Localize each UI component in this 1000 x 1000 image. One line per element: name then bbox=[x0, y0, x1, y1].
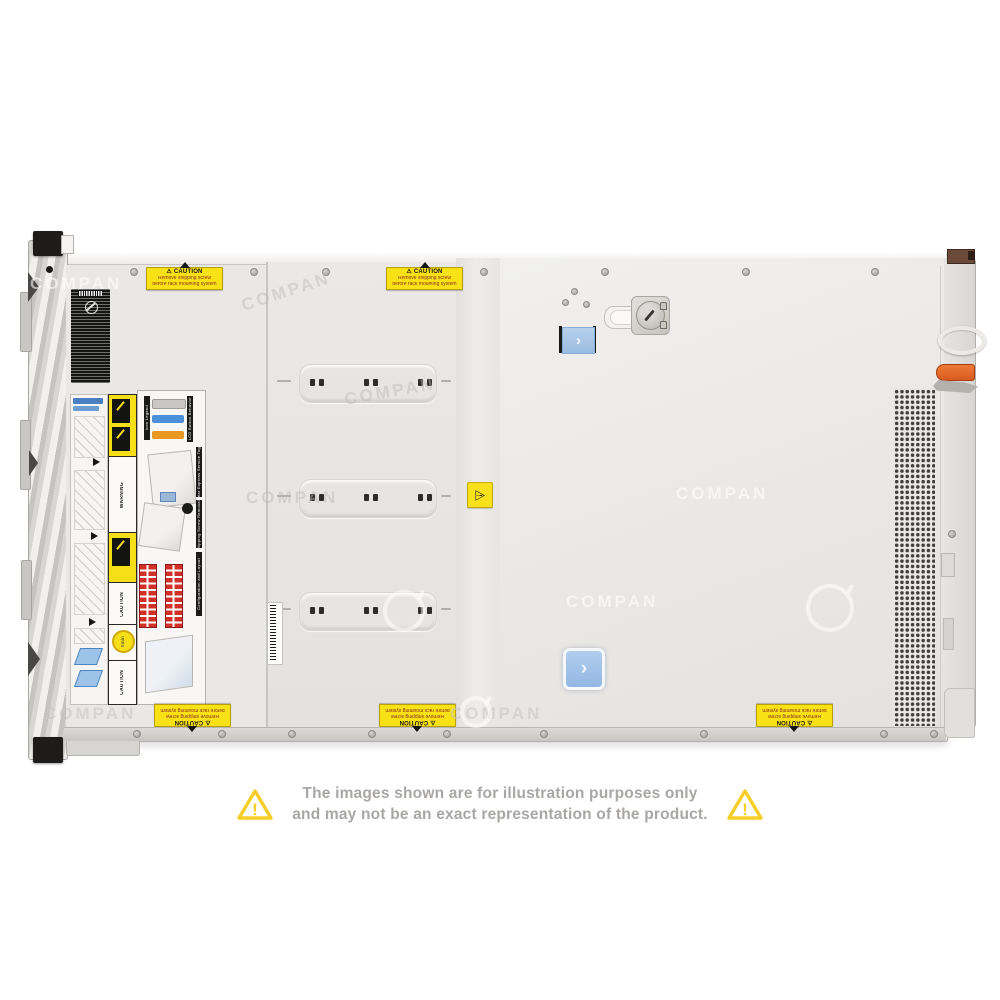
unlock-icon bbox=[660, 321, 667, 329]
psu-vent-grid bbox=[893, 388, 935, 726]
screw bbox=[930, 730, 938, 738]
hazard-triangle-icon: ⚠ bbox=[474, 489, 487, 501]
screw bbox=[948, 530, 956, 538]
tip-hazard-pictogram-icon bbox=[112, 427, 130, 451]
screw bbox=[130, 268, 138, 276]
watermark-logo bbox=[806, 584, 854, 632]
caution-sticker-line2: before rack mounting system bbox=[147, 282, 222, 288]
warning-text-label: WARNING bbox=[108, 456, 137, 534]
vent-slot-pair bbox=[364, 607, 378, 614]
screw bbox=[368, 730, 376, 738]
section-header-shipping-screw: Shipping Screw Removal bbox=[196, 500, 202, 548]
caution-sticker: ⚠ CAUTION Remove shipping screw before r… bbox=[146, 267, 223, 290]
screw bbox=[218, 730, 226, 738]
sticker-notch-icon bbox=[420, 262, 430, 268]
rack-ear-bottom bbox=[33, 737, 63, 763]
section-header-lcd-behavior: LCD Button Behavior bbox=[187, 396, 193, 442]
chevron-right-icon: › bbox=[576, 332, 581, 349]
sticker-notch-icon bbox=[790, 726, 800, 732]
caution-word: CAUTION bbox=[776, 719, 805, 725]
warning-triangle-icon: ! bbox=[726, 788, 764, 822]
disclaimer-line1: The images shown are for illustration pu… bbox=[292, 784, 708, 805]
caution-sticker-title: ⚠ CAUTION bbox=[387, 269, 462, 276]
disclaimer: ! The images shown are for illustration … bbox=[0, 784, 1000, 826]
shipping-screw-icon bbox=[182, 503, 193, 514]
caution-sticker-title: ⚠ CAUTION bbox=[380, 718, 455, 725]
drive-config-grid bbox=[139, 564, 157, 628]
rear-bump bbox=[944, 688, 975, 738]
instruction-diagram bbox=[74, 628, 105, 644]
section-title: Configuration and Layout bbox=[197, 558, 201, 610]
vent-slot-pair bbox=[310, 379, 324, 386]
lcd-bar-orange bbox=[152, 431, 184, 439]
instruction-header-bar bbox=[73, 406, 99, 411]
chassis-foot bbox=[66, 740, 140, 756]
caution-title: CAUTION bbox=[120, 670, 125, 695]
watermark-text: COMPAN bbox=[246, 488, 338, 508]
screw bbox=[880, 730, 888, 738]
front-bezel bbox=[28, 240, 68, 760]
caution-sticker-title: ⚠ CAUTION bbox=[757, 718, 832, 725]
instruction-header-bar bbox=[73, 398, 103, 404]
screw bbox=[288, 730, 296, 738]
screw bbox=[742, 268, 750, 276]
screw bbox=[250, 268, 258, 276]
rear-cable-tab bbox=[947, 249, 975, 264]
caution-sticker-line1: Remove shipping screw bbox=[155, 713, 230, 719]
vent-slot-pair bbox=[418, 494, 432, 501]
caution-text-label: CAUTION bbox=[108, 582, 137, 626]
screw bbox=[871, 268, 879, 276]
warning-triangle-icon: ! bbox=[236, 788, 274, 822]
regulatory-logo-icon bbox=[85, 301, 98, 314]
caution-sticker-title: ⚠ CAUTION bbox=[155, 718, 230, 725]
watermark-logo bbox=[383, 590, 425, 632]
screw bbox=[583, 301, 590, 308]
caution-sticker-line2: before rack mounting system bbox=[155, 707, 230, 713]
screw bbox=[133, 730, 141, 738]
instruction-diagram bbox=[74, 470, 105, 530]
caution-sticker: ⚠ CAUTION Remove shipping screw before r… bbox=[386, 267, 463, 290]
bezel-tab bbox=[20, 292, 32, 352]
disclaimer-text: The images shown are for illustration pu… bbox=[292, 784, 708, 826]
section-header-service-tag: Rear Express Service Tag bbox=[196, 447, 202, 497]
section-header-icon-legend: Icon Legend bbox=[144, 396, 150, 440]
rear-tab bbox=[941, 553, 955, 577]
caution-sticker: ⚠ CAUTION Remove shipping screw before r… bbox=[379, 704, 456, 727]
serial-barcode-label bbox=[267, 602, 283, 665]
screw-mark bbox=[277, 380, 291, 382]
chevron-right-icon: › bbox=[581, 658, 587, 680]
wait-timer-icon: 5min bbox=[112, 630, 135, 653]
watermark-logo bbox=[460, 696, 492, 728]
caution-word: CAUTION bbox=[174, 269, 203, 275]
tip-hazard-pictogram-icon bbox=[112, 399, 130, 423]
screw bbox=[601, 268, 609, 276]
warning-title: WARNING bbox=[120, 482, 125, 508]
disclaimer-line2: and may not be an exact representation o… bbox=[292, 805, 708, 826]
lcd-bar-gray bbox=[152, 399, 186, 409]
warning-triangle-glyph: ⚠ bbox=[166, 269, 172, 275]
screw bbox=[540, 730, 548, 738]
watermark-text: COMPAN bbox=[30, 274, 122, 294]
screw bbox=[443, 730, 451, 738]
caution-sticker-line2: before rack mounting system bbox=[387, 282, 462, 288]
caution-sticker-line2: before rack mounting system bbox=[380, 707, 455, 713]
timer-text: 5min bbox=[121, 636, 126, 647]
lcd-bar-blue bbox=[152, 415, 184, 423]
rear-tab bbox=[943, 618, 954, 650]
screw bbox=[562, 299, 569, 306]
caution-sticker-line1: Remove shipping screw bbox=[757, 713, 832, 719]
section-title: Icon Legend bbox=[145, 405, 149, 430]
arrow-icon bbox=[91, 532, 98, 540]
caution-sticker-title: ⚠ CAUTION bbox=[147, 269, 222, 276]
service-tag-pull bbox=[160, 492, 176, 502]
watermark-text: COMPAN bbox=[566, 592, 658, 612]
arrow-icon bbox=[93, 458, 100, 466]
caution-text-label: CAUTION bbox=[108, 660, 137, 705]
orange-pull-tab bbox=[936, 364, 975, 381]
lift-hazard-pictogram-icon bbox=[112, 538, 130, 566]
rack-ear-top bbox=[33, 231, 63, 256]
warning-triangle-glyph: ⚠ bbox=[205, 719, 211, 725]
instruction-diagram bbox=[74, 416, 105, 458]
caution-word: CAUTION bbox=[399, 719, 428, 725]
exclamation-glyph: ! bbox=[742, 800, 748, 819]
rack-ear-latch bbox=[61, 235, 74, 254]
screw bbox=[700, 730, 708, 738]
section-title: Shipping Screw Removal bbox=[197, 500, 201, 548]
screw bbox=[480, 268, 488, 276]
vent-slot-pair bbox=[364, 494, 378, 501]
section-header-configuration: Configuration and Layout bbox=[196, 552, 202, 616]
keylock bbox=[631, 296, 670, 335]
caution-sticker-line1: Remove shipping screw bbox=[380, 713, 455, 719]
screw-mark bbox=[441, 380, 451, 382]
bezel-tab bbox=[21, 560, 32, 620]
cover-latch-button: › bbox=[563, 648, 605, 690]
exclamation-glyph: ! bbox=[252, 800, 258, 819]
watermark-text: COMPAN bbox=[676, 484, 768, 504]
caution-sticker: ⚠ CAUTION Remove shipping screw before r… bbox=[756, 704, 833, 727]
section-title: Rear Express Service Tag bbox=[197, 447, 201, 497]
watermark-text: COMPAN bbox=[44, 704, 136, 724]
ring-handle bbox=[938, 326, 986, 355]
caution-word: CAUTION bbox=[414, 269, 443, 275]
sticker-notch-icon bbox=[188, 726, 198, 732]
screw bbox=[46, 266, 53, 273]
product-photo-server-top-view: WARNING CAUTION 5min CAUTION Icon Legend… bbox=[0, 0, 1000, 1000]
screw-mark bbox=[441, 608, 451, 610]
caution-title: CAUTION bbox=[120, 592, 125, 617]
warning-triangle-glyph: ⚠ bbox=[406, 269, 412, 275]
caution-sticker-line2: before rack mounting system bbox=[757, 707, 832, 713]
shipping-screw-diagram bbox=[138, 502, 186, 551]
caution-word: CAUTION bbox=[174, 719, 203, 725]
warning-triangle-glyph: ⚠ bbox=[430, 719, 436, 725]
drive-config-grid bbox=[165, 564, 183, 628]
sticker-notch-icon bbox=[180, 262, 190, 268]
sticker-notch-icon bbox=[413, 726, 423, 732]
vent-slot-pair bbox=[310, 607, 324, 614]
caution-sticker: ⚠ CAUTION Remove shipping screw before r… bbox=[154, 704, 231, 727]
warning-triangle-glyph: ⚠ bbox=[807, 719, 813, 725]
lock-icon bbox=[660, 302, 667, 310]
arrow-icon bbox=[89, 618, 96, 626]
instruction-diagram bbox=[74, 543, 105, 615]
section-title: LCD Button Behavior bbox=[188, 397, 192, 440]
screw bbox=[571, 288, 578, 295]
chassis-layout-diagram bbox=[145, 635, 193, 694]
screw-mark bbox=[441, 495, 451, 497]
cover-release-button: › bbox=[562, 327, 595, 354]
hazard-sticker: ⚠ bbox=[467, 482, 493, 508]
